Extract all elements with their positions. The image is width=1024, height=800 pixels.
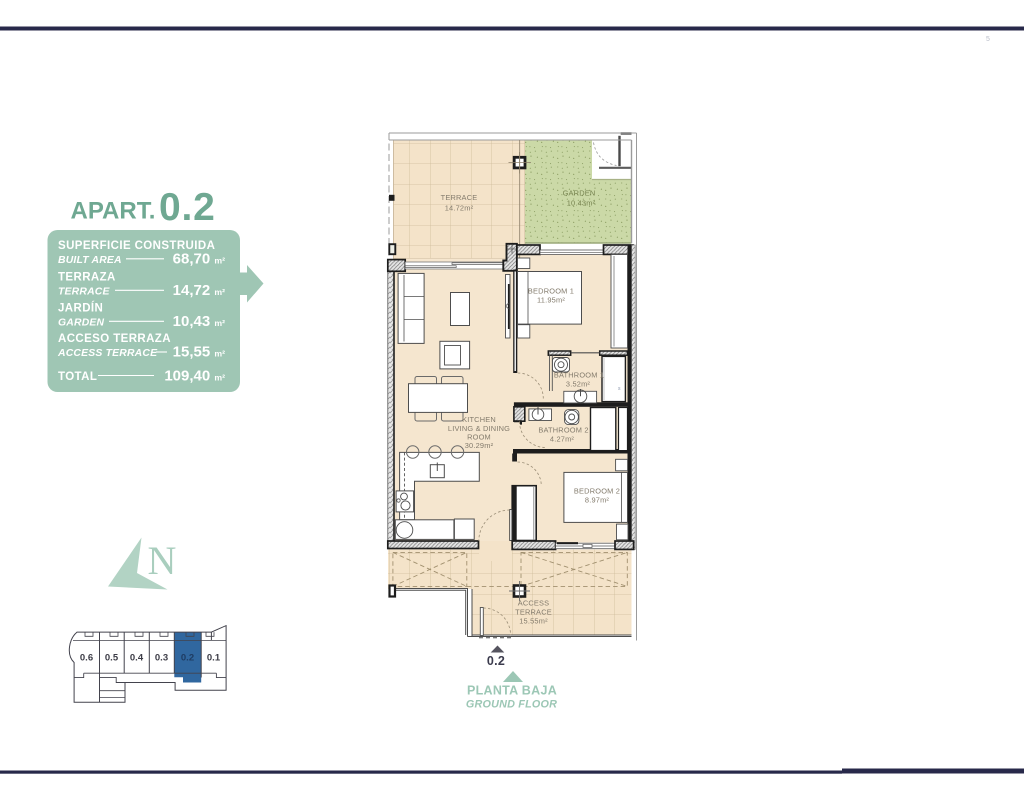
svg-text:PLANTA BAJA: PLANTA BAJA	[467, 684, 557, 698]
svg-text:TERRACE: TERRACE	[515, 608, 552, 617]
svg-text:ACCESS TERRACE: ACCESS TERRACE	[57, 348, 158, 359]
svg-text:TERRAZA: TERRAZA	[58, 272, 116, 284]
svg-text:APART.: APART.	[71, 198, 156, 225]
svg-text:BATHROOM 2: BATHROOM 2	[538, 426, 588, 435]
svg-text:GARDEN: GARDEN	[58, 318, 105, 329]
svg-text:TOTAL: TOTAL	[58, 371, 97, 383]
svg-text:TERRACE: TERRACE	[58, 287, 110, 298]
svg-text:5: 5	[986, 36, 990, 43]
svg-text:0.2: 0.2	[181, 653, 194, 664]
svg-text:TERRACE: TERRACE	[441, 193, 478, 202]
svg-text:3.52m²: 3.52m²	[566, 380, 591, 389]
svg-text:11.95m²: 11.95m²	[537, 296, 565, 305]
svg-text:BATHROOM 1: BATHROOM 1	[554, 371, 604, 380]
svg-text:BEDROOM 1: BEDROOM 1	[528, 287, 574, 296]
svg-text:N: N	[148, 538, 177, 583]
svg-text:BEDROOM 2: BEDROOM 2	[574, 487, 620, 496]
svg-text:0.2: 0.2	[487, 654, 505, 668]
svg-text:10.43m²: 10.43m²	[567, 198, 596, 207]
svg-text:8.97m²: 8.97m²	[585, 496, 610, 505]
svg-text:0.1: 0.1	[207, 653, 221, 664]
svg-text:0.2: 0.2	[159, 186, 216, 229]
svg-text:30.29m²: 30.29m²	[465, 441, 494, 450]
svg-text:JARDÍN: JARDÍN	[58, 302, 103, 315]
svg-text:ACCESS: ACCESS	[518, 599, 550, 608]
svg-text:GARDEN: GARDEN	[563, 188, 596, 197]
svg-text:0.4: 0.4	[130, 653, 144, 664]
svg-text:4.27m²: 4.27m²	[550, 435, 575, 444]
svg-text:15.55m²: 15.55m²	[519, 617, 548, 626]
svg-text:0.5: 0.5	[105, 653, 119, 664]
svg-text:GROUND FLOOR: GROUND FLOOR	[466, 699, 557, 711]
svg-text:BUILT AREA: BUILT AREA	[58, 255, 122, 266]
svg-text:0.6: 0.6	[80, 653, 93, 664]
svg-text:ACCESO TERRAZA: ACCESO TERRAZA	[58, 333, 171, 345]
svg-text:KITCHEN: KITCHEN	[462, 415, 496, 424]
svg-text:0.3: 0.3	[155, 653, 168, 664]
svg-text:14.72m²: 14.72m²	[445, 204, 474, 213]
